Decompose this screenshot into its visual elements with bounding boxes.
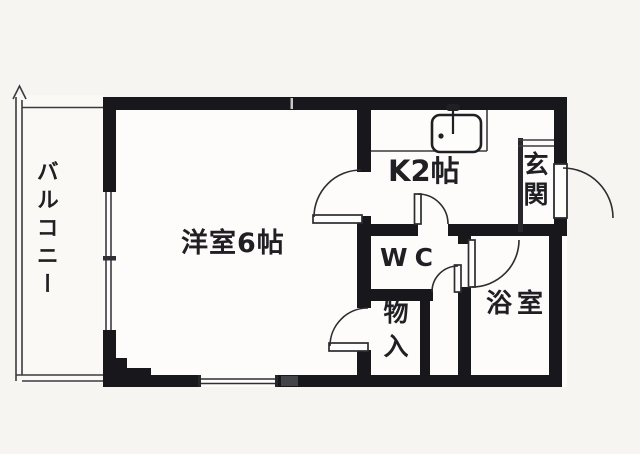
wall-bottom-left — [103, 375, 198, 387]
entrance-door-icon — [554, 164, 613, 218]
south-window-icon — [198, 375, 278, 387]
wall-room-divider-upper — [357, 97, 371, 172]
kitchen-label: K2帖 — [388, 156, 460, 187]
toilet-label: WC — [380, 244, 440, 271]
balcony-window-icon — [103, 192, 116, 330]
storage-label: 物入 — [381, 299, 408, 367]
sink-drain-icon — [438, 133, 443, 138]
floor-plan: バルコニー 洋室6帖 K2帖 玄関 WC 物入 浴室 — [0, 0, 640, 454]
western-room-label: 洋室6帖 — [181, 229, 285, 258]
wall-bathroom-right — [549, 224, 562, 387]
wall-storage-right — [420, 289, 430, 387]
entrance-label: 玄関 — [521, 151, 548, 211]
faucet-head-icon — [447, 104, 460, 111]
floor-plan-drawing — [0, 0, 640, 454]
wall-bathroom-left-lower — [458, 287, 471, 387]
balcony-floor — [16, 95, 103, 383]
balcony-label: バルコニー — [33, 160, 57, 300]
wall-room-divider-lower — [357, 350, 371, 387]
wall-right-upper — [554, 97, 567, 167]
wall-top — [103, 97, 567, 110]
bathroom-label: 浴室 — [486, 290, 548, 318]
wall-left-upper — [103, 97, 116, 192]
wall-kitchen-south-left — [357, 224, 418, 236]
floor-areas — [16, 95, 567, 387]
